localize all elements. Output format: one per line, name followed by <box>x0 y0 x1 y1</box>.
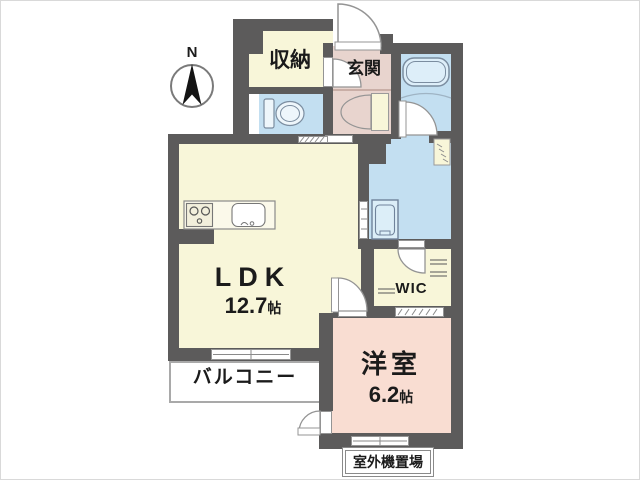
wall <box>245 19 263 54</box>
washroom-sliding-door <box>359 201 368 239</box>
ldk-vent-window <box>298 136 328 143</box>
hall-ldk-opening <box>325 135 353 143</box>
room-wic <box>372 249 451 309</box>
wic-label: WIC <box>372 281 451 296</box>
hall-closet <box>371 93 389 131</box>
compass-label: N <box>177 45 207 60</box>
room-bathroom <box>399 54 451 139</box>
wall <box>451 43 463 449</box>
western-size-unit: 帖 <box>399 389 413 405</box>
north-compass-icon <box>171 64 213 107</box>
ldk-label: LDK <box>179 264 327 291</box>
outdoor-unit-label: 室外機置場 <box>353 452 423 472</box>
wall <box>168 134 179 361</box>
wall-kitchen-jut <box>179 229 214 244</box>
western-side-door-arc <box>298 411 320 435</box>
western-size-value: 6.2 <box>369 382 400 407</box>
entrance-label: 玄関 <box>335 60 393 77</box>
wall <box>429 131 451 143</box>
ldk-size: 12.7帖 <box>179 295 327 317</box>
balcony-window <box>211 349 291 360</box>
outdoor-unit-box: 室外機置場 <box>342 447 434 477</box>
entrance-door-arc <box>335 4 381 50</box>
wall <box>245 87 333 94</box>
western-label: 洋室 <box>331 351 451 377</box>
entrance-step <box>333 89 391 91</box>
wic-door-opening <box>398 240 425 248</box>
ldk-size-unit: 帖 <box>267 300 281 316</box>
balcony-label: バルコニー <box>169 368 321 387</box>
storage-label: 収納 <box>247 50 333 71</box>
ldk-size-value: 12.7 <box>225 293 268 318</box>
ldk-western-opening <box>338 307 367 317</box>
western-side-door-opening <box>320 411 332 434</box>
western-size: 6.2帖 <box>331 384 451 406</box>
wall <box>369 139 386 164</box>
room-toilet <box>259 94 323 134</box>
floor-plan: N 収納 玄関 LDK 12.7帖 WIC 洋室 6.2帖 バルコニー 室外機置… <box>0 0 640 480</box>
wic-sliding-door <box>395 307 444 317</box>
western-window <box>351 436 409 446</box>
